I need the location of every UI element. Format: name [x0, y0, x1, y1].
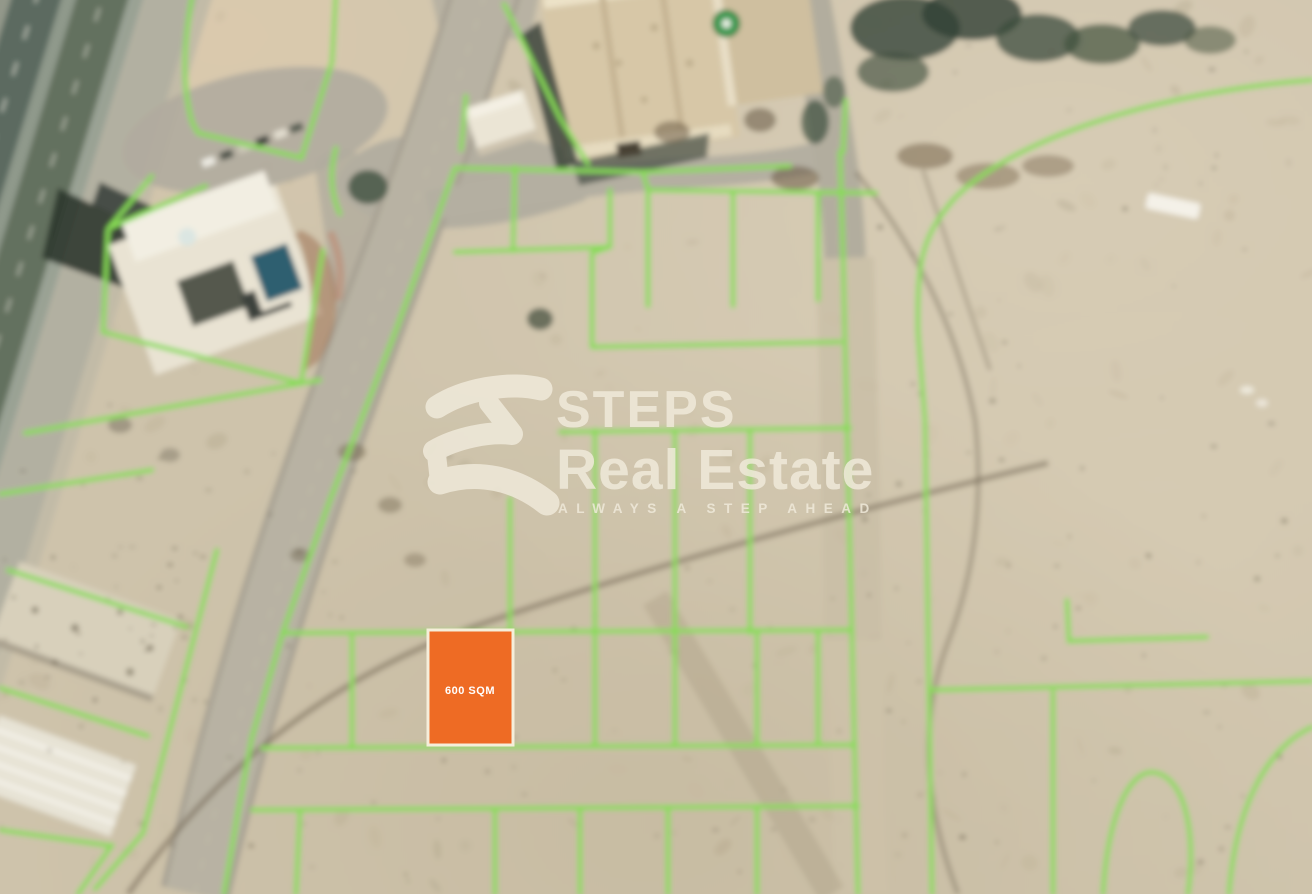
highlighted-plot: 600 SQM — [428, 630, 513, 745]
brand-name-line2: Real Estate — [556, 438, 874, 502]
satellite-map: STEPS Real Estate ALWAYS A STEP AHEAD 60… — [0, 0, 1312, 894]
plot-area-label: 600 SQM — [445, 685, 495, 697]
brand-tagline: ALWAYS A STEP AHEAD — [558, 501, 878, 516]
brand-name-line1: STEPS — [556, 381, 737, 439]
